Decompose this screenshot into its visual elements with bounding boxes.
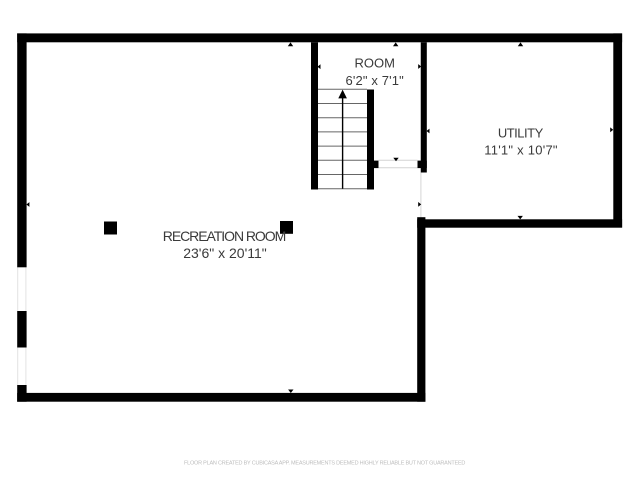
- svg-text:UTILITY: UTILITY: [498, 125, 544, 140]
- svg-text:11'1" x 10'7": 11'1" x 10'7": [484, 143, 558, 158]
- svg-text:FLOOR PLAN CREATED BY CUBICASA: FLOOR PLAN CREATED BY CUBICASA APP. MEAS…: [184, 461, 465, 467]
- svg-text:23'6" x 20'11": 23'6" x 20'11": [183, 245, 267, 261]
- svg-text:6'2" x 7'1": 6'2" x 7'1": [345, 73, 404, 88]
- svg-text:RECREATION ROOM: RECREATION ROOM: [163, 228, 286, 244]
- svg-text:ROOM: ROOM: [354, 55, 394, 70]
